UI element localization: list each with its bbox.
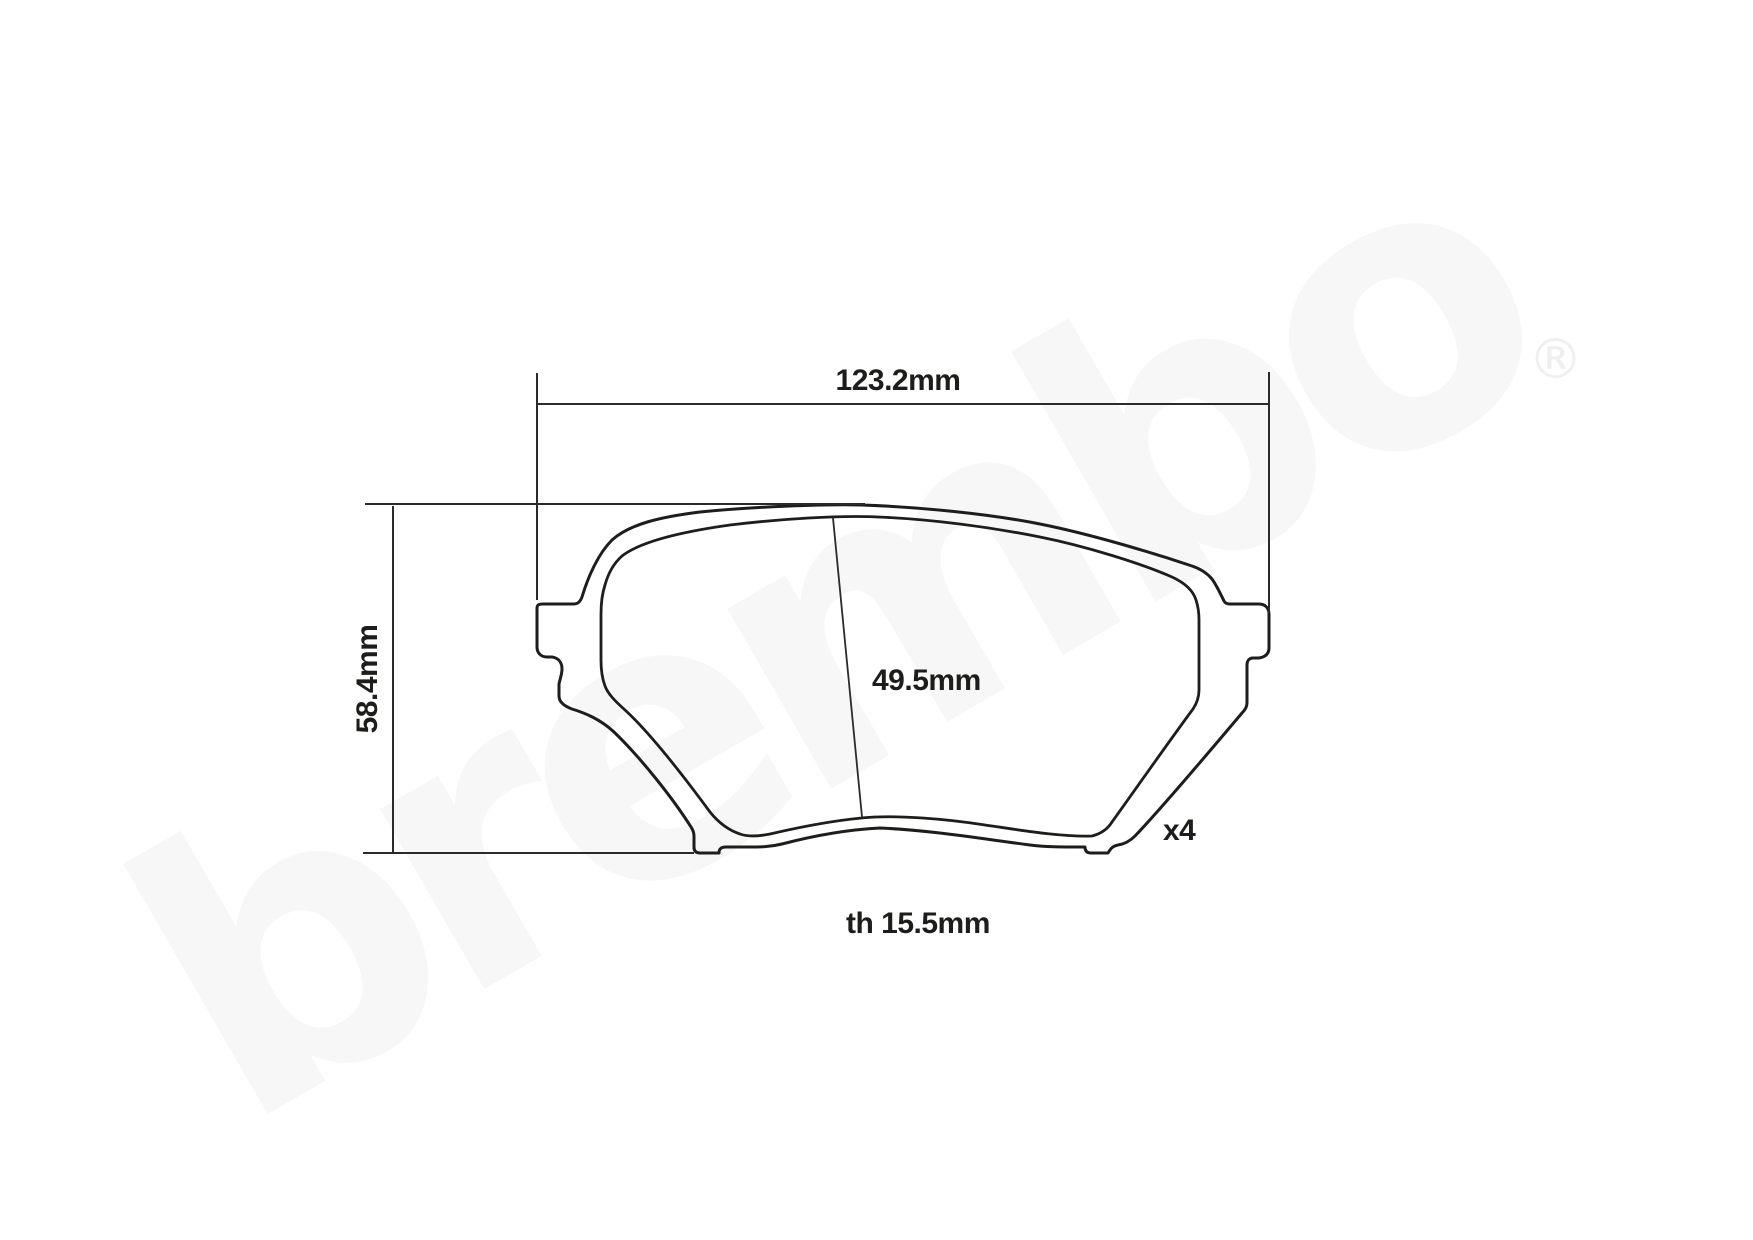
quantity-label: x4 bbox=[1163, 814, 1196, 847]
thickness-label: th 15.5mm bbox=[846, 907, 990, 940]
overall-width-label: 123.2mm bbox=[836, 364, 961, 397]
brembo-watermark-wordmark: brembo bbox=[64, 62, 1606, 1208]
friction-height-label: 49.5mm bbox=[872, 664, 981, 697]
brake-pad-technical-drawing: brembo ® 123.2mm 58.4mm 49.5 bbox=[0, 0, 1753, 1240]
brembo-watermark: brembo ® bbox=[64, 62, 1606, 1208]
registered-trademark-icon: ® bbox=[1528, 327, 1583, 391]
overall-height-label: 58.4mm bbox=[351, 625, 384, 734]
